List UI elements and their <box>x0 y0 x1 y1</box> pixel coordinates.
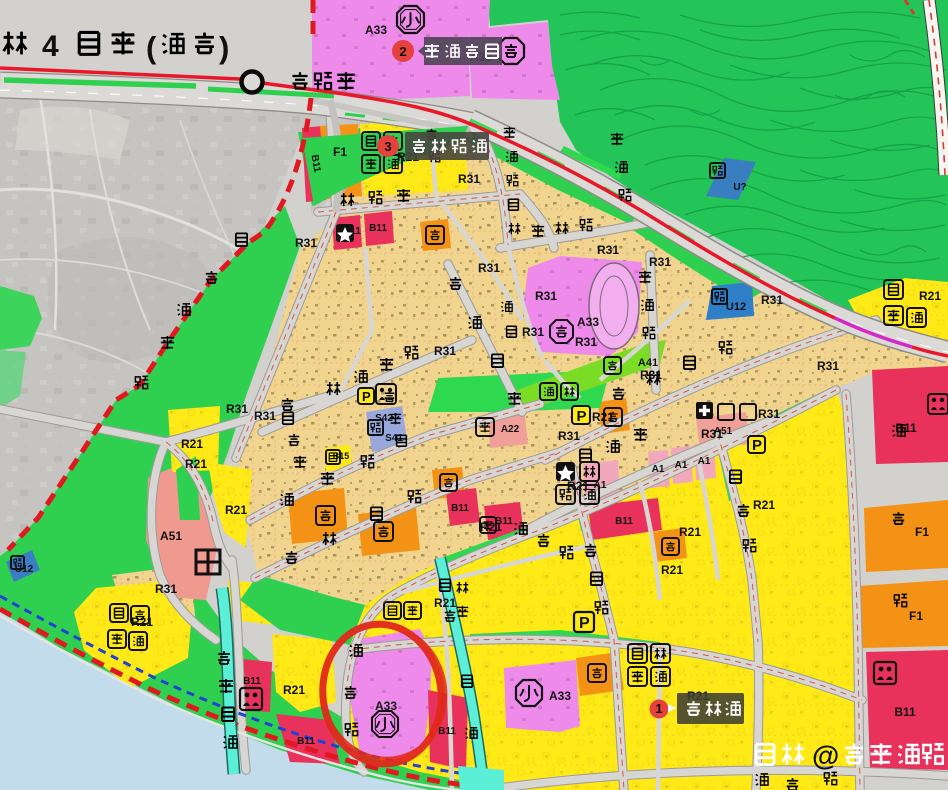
svg-text:A22: A22 <box>501 424 520 435</box>
svg-text:F1: F1 <box>915 525 929 539</box>
svg-text:R31: R31 <box>817 359 839 373</box>
svg-text:R21: R21 <box>225 503 247 517</box>
svg-text:R21: R21 <box>919 289 941 303</box>
svg-text:A33: A33 <box>365 23 387 37</box>
svg-text:1: 1 <box>655 701 662 716</box>
svg-text:): ) <box>219 30 229 65</box>
svg-text:A41: A41 <box>638 357 658 369</box>
svg-text:R21: R21 <box>181 437 203 451</box>
svg-text:P: P <box>577 408 587 425</box>
svg-text:R31: R31 <box>155 582 177 596</box>
svg-text:U?: U? <box>733 182 746 193</box>
svg-text:A1: A1 <box>675 460 688 471</box>
svg-text:B11: B11 <box>894 705 916 719</box>
svg-text:(: ( <box>146 30 157 65</box>
svg-text:2: 2 <box>399 44 406 59</box>
svg-text:R31: R31 <box>522 325 544 339</box>
svg-text:P: P <box>752 437 762 454</box>
svg-text:3: 3 <box>384 139 391 154</box>
svg-text:R31: R31 <box>226 402 248 416</box>
svg-text:A51: A51 <box>160 529 182 543</box>
svg-text:R31: R31 <box>558 429 580 443</box>
svg-text:R31: R31 <box>535 289 557 303</box>
svg-text:R31: R31 <box>458 172 480 186</box>
svg-text:R21: R21 <box>753 498 775 512</box>
svg-text:R21: R21 <box>185 457 207 471</box>
svg-text:R31: R31 <box>758 407 780 421</box>
svg-text:R21: R21 <box>679 525 701 539</box>
svg-text:A33: A33 <box>577 315 599 329</box>
svg-text:B11: B11 <box>615 516 633 527</box>
svg-text:U12: U12 <box>726 301 746 313</box>
svg-text:R31: R31 <box>295 236 317 250</box>
svg-text:F1: F1 <box>333 145 347 159</box>
svg-text:P: P <box>579 615 590 632</box>
svg-text:B11: B11 <box>451 503 469 514</box>
svg-text:A51: A51 <box>714 426 733 437</box>
svg-text:B11: B11 <box>369 223 387 234</box>
svg-text:4: 4 <box>42 30 59 63</box>
svg-text:R31: R31 <box>597 243 619 257</box>
svg-text:F1: F1 <box>909 609 923 623</box>
svg-text:R31: R31 <box>478 261 500 275</box>
svg-text:A33: A33 <box>549 689 571 703</box>
svg-text:R21: R21 <box>661 563 683 577</box>
svg-text:@: @ <box>812 740 839 771</box>
svg-text:B11: B11 <box>438 726 456 737</box>
svg-text:B11: B11 <box>297 736 315 747</box>
svg-text:R31: R31 <box>254 409 276 423</box>
svg-text:R21: R21 <box>283 683 305 697</box>
svg-text:R31: R31 <box>761 293 783 307</box>
svg-text:B11: B11 <box>495 516 513 527</box>
svg-text:B11: B11 <box>243 676 261 687</box>
svg-text:R21: R21 <box>434 596 456 610</box>
svg-text:R31: R31 <box>575 335 597 349</box>
svg-text:A1: A1 <box>698 456 711 467</box>
svg-text:R31: R31 <box>649 255 671 269</box>
svg-text:P: P <box>362 389 371 404</box>
svg-text:A1: A1 <box>652 464 665 475</box>
svg-text:R31: R31 <box>434 344 456 358</box>
